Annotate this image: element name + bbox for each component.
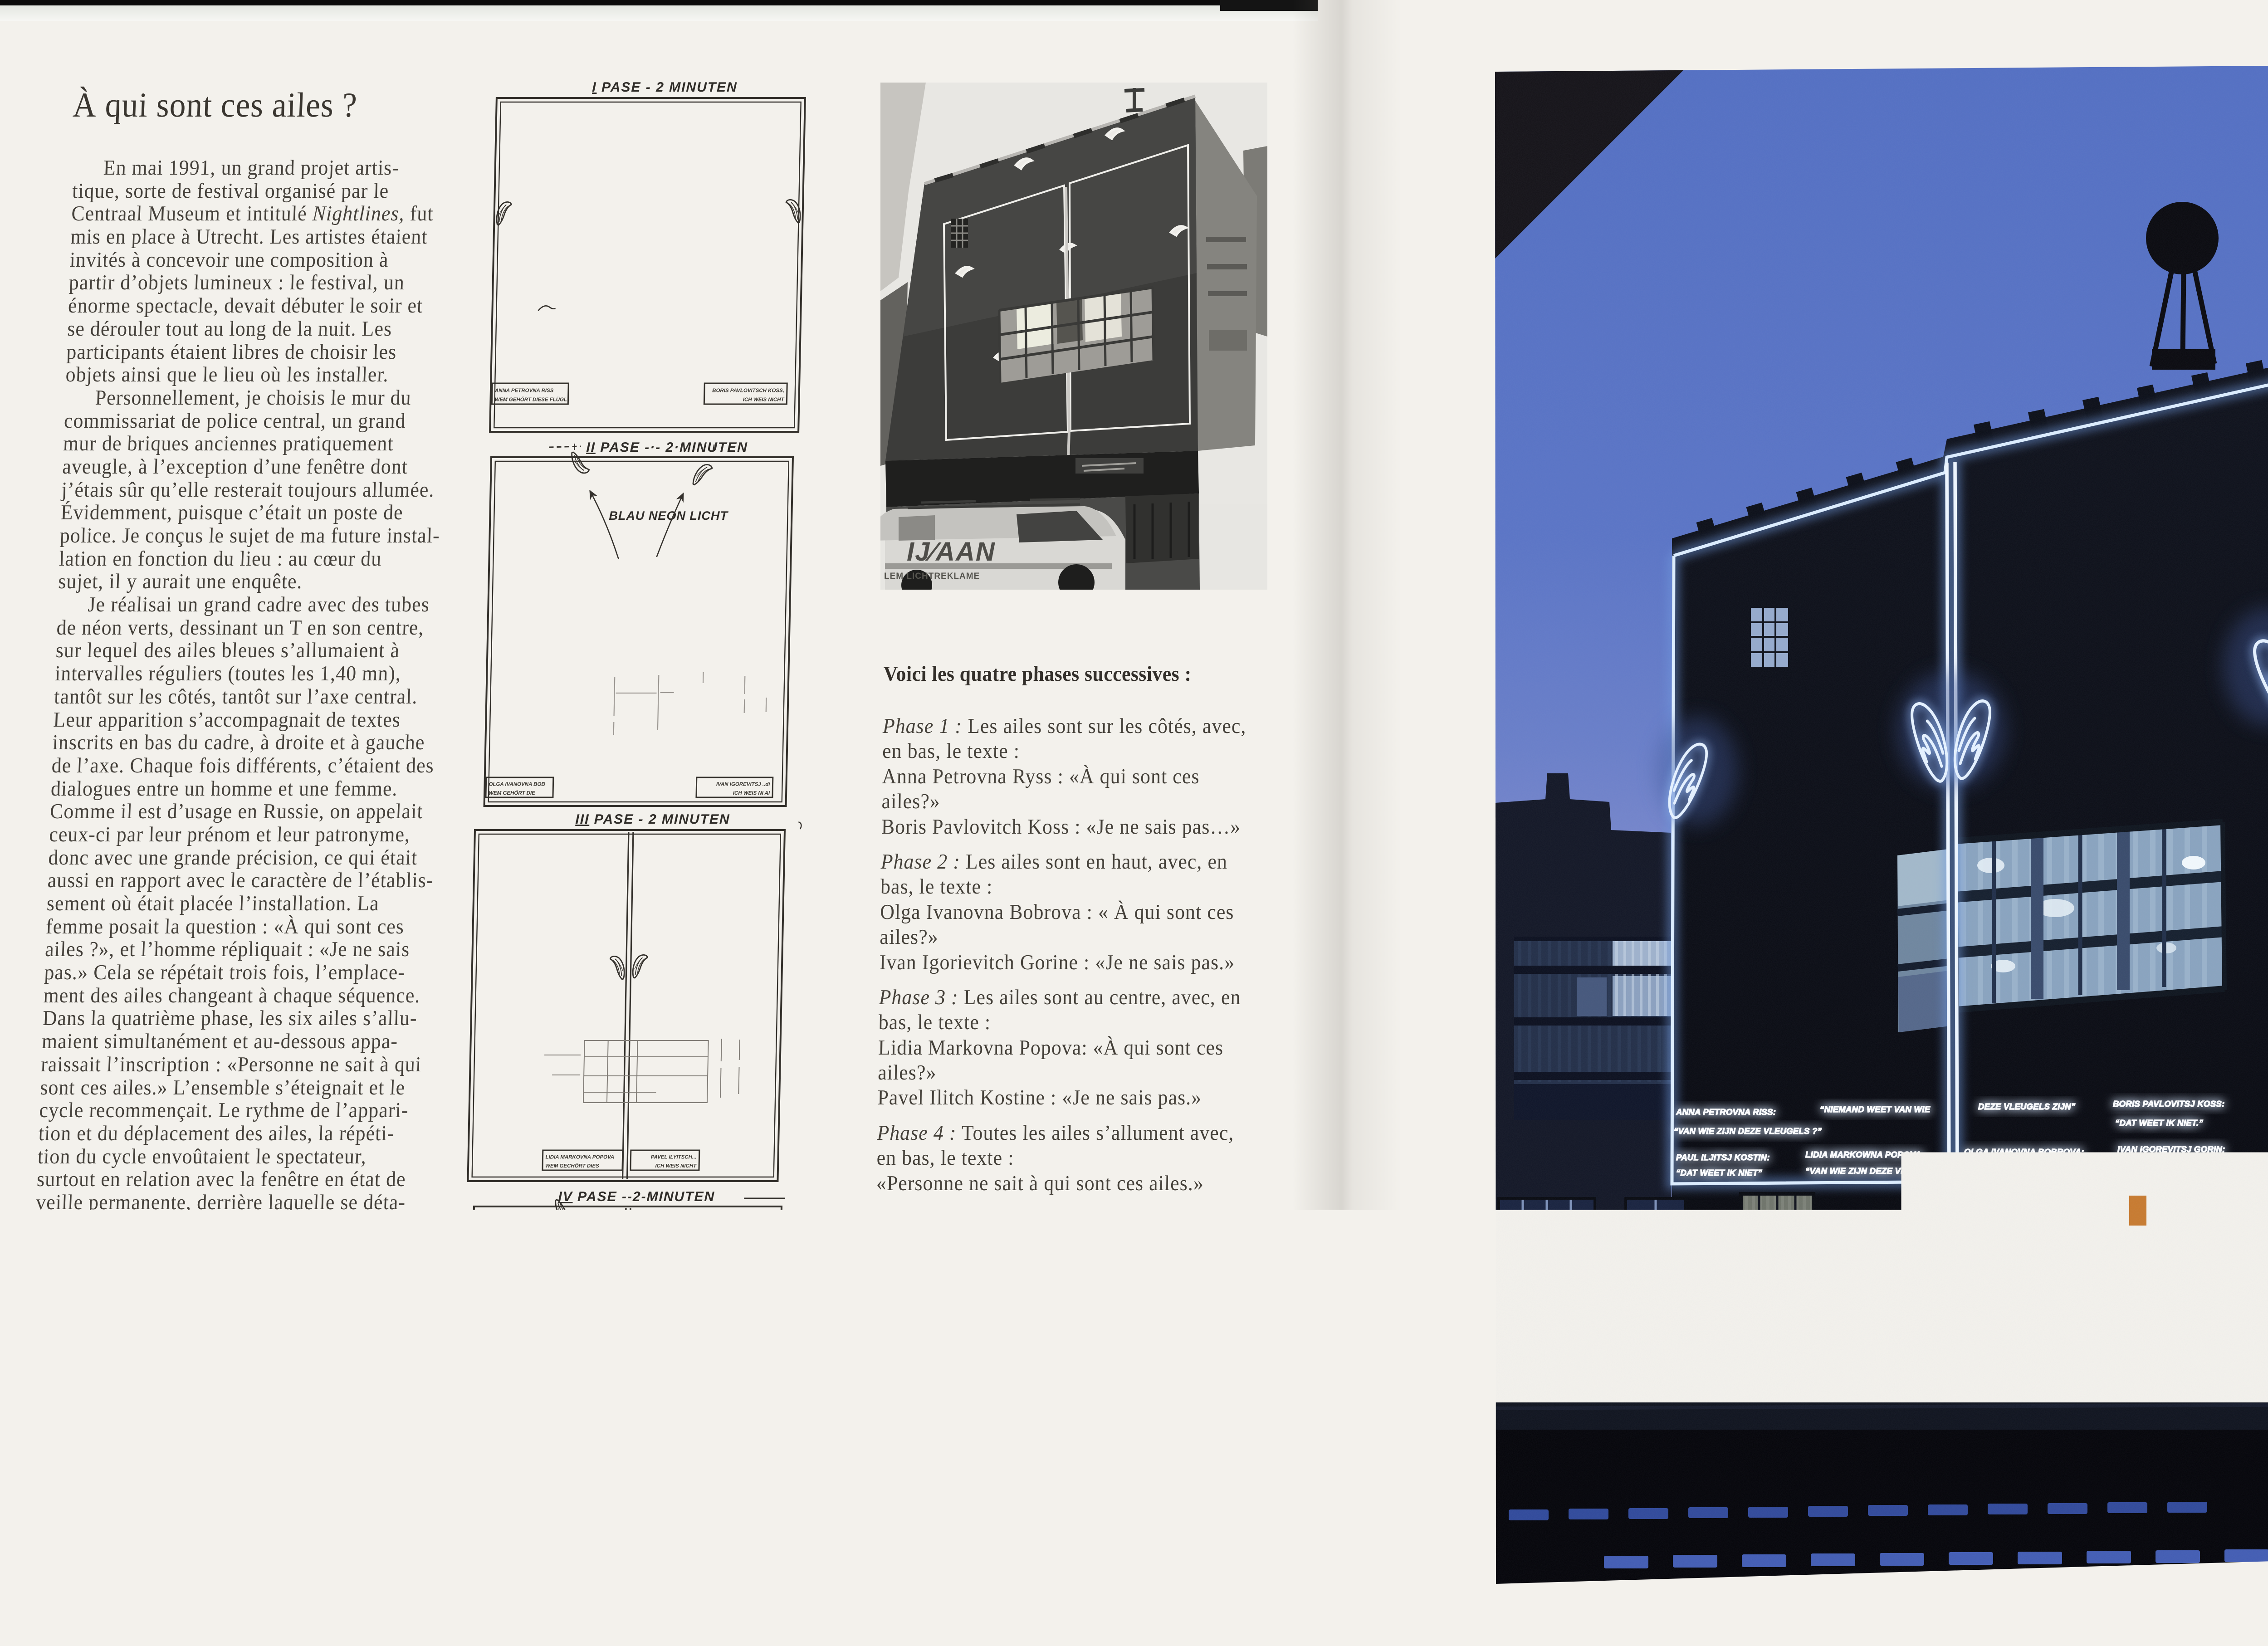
svg-text:II PASE -·- 2·MINUTEN: II PASE -·- 2·MINUTEN: [586, 440, 748, 455]
svg-text:IV PASE --2-MINUTEN: IV PASE --2-MINUTEN: [558, 1189, 715, 1204]
svg-text:IVAN IGOREVITSJ ..di: IVAN IGOREVITSJ ..di: [716, 781, 771, 787]
svg-text:ICH WEIS NICHT: ICH WEIS NICHT: [655, 1163, 697, 1169]
svg-text:WEM GECHÖRT DIES: WEM GECHÖRT DIES: [545, 1163, 599, 1169]
svg-text:ZUSAMMEN: ZUSAMMEN: [522, 1299, 594, 1313]
svg-text:ICH WEIS NICHT: ICH WEIS NICHT: [743, 397, 785, 403]
svg-text:IJ⁄AAN: IJ⁄AAN: [907, 537, 996, 567]
svg-text:PAVEL ILYITSCH...: PAVEL ILYITSCH...: [651, 1154, 697, 1160]
svg-text:BLAU NEON LICHT: BLAU NEON LICHT: [609, 509, 729, 523]
svg-text:ANNA PETROVNA RISS: ANNA PETROVNA RISS: [494, 388, 554, 393]
svg-text:OLGA IVANOVNA BOB: OLGA IVANOVNA BOB: [489, 781, 545, 787]
svg-text:WEM GEHÖRT DIE: WEM GEHÖRT DIE: [489, 790, 535, 796]
svg-text:I PASE - 2 MINUTEN: I PASE - 2 MINUTEN: [592, 80, 738, 95]
svg-text:ALLES: ALLES: [518, 1283, 560, 1296]
svg-text:ICH WEIS NI AI: ICH WEIS NI AI: [733, 791, 770, 796]
svg-text:NIMAND YEIS, WEM GECHÖRT DIESE: NIMAND YEIS, WEM GECHÖRT DIESEN: [538, 1517, 740, 1528]
svg-text:BORIS PAVLOVITSCH KOSS,: BORIS PAVLOVITSCH KOSS,: [712, 388, 784, 393]
svg-text:III PASE - 2 MINUTEN: III PASE - 2 MINUTEN: [575, 812, 730, 827]
svg-text:LEM LICHTREKLAME: LEM LICHTREKLAME: [884, 571, 980, 581]
svg-text:LIDIA MARKOVNA POPOVA: LIDIA MARKOVNA POPOVA: [545, 1154, 614, 1160]
svg-text:WEM GEHÖRT DIESE FLÜGL: WEM GEHÖRT DIESE FLÜGL: [494, 397, 567, 403]
